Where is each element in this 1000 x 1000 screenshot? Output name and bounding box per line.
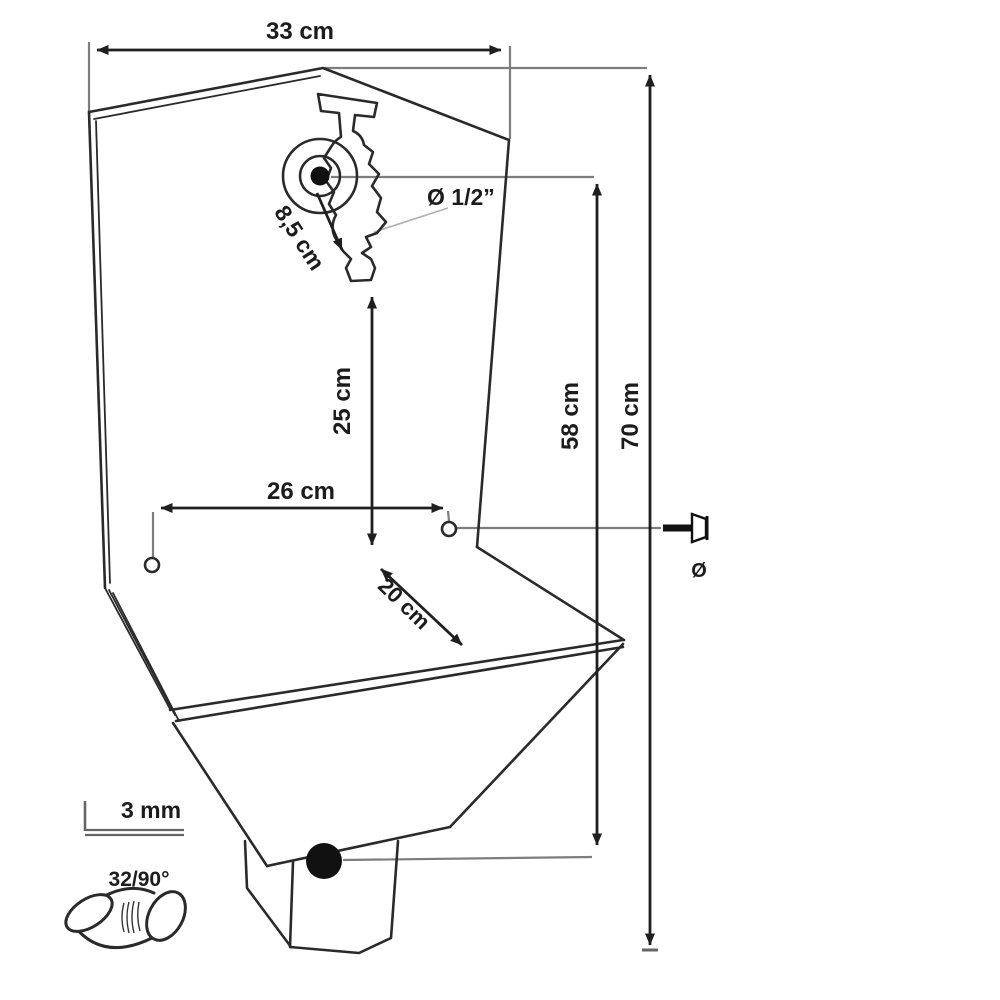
- label-hole-spacing-26cm: 26 cm: [267, 478, 335, 505]
- basin-rim-top-edge: [170, 640, 623, 710]
- label-thread-half-inch: Ø 1/2”: [427, 184, 495, 210]
- elbow-icon: [60, 885, 194, 948]
- corner-ridge-1: [105, 588, 170, 709]
- label-tap-offset-8-5cm: 8,5 cm: [269, 201, 330, 275]
- elbow-hatch-2: [127, 902, 129, 933]
- corner-ridge-2: [109, 590, 175, 715]
- screw-icon: [663, 514, 707, 542]
- label-sheet-thickness-3mm: 3 mm: [121, 797, 181, 823]
- label-basin-depth-20cm: 20 cm: [373, 573, 435, 634]
- basin-top-right-edge: [477, 547, 624, 640]
- label-elbow-32-90: 32/90°: [109, 868, 170, 891]
- elbow-hatch-3: [132, 901, 134, 933]
- dimension-lines: [97, 50, 658, 950]
- label-width-33cm: 33 cm: [266, 18, 334, 45]
- ref-line-drain-58: [343, 857, 592, 860]
- back-panel-top-inner-edge: [94, 76, 320, 119]
- pedestal-left-side: [245, 841, 291, 947]
- ext-line-right-26: [448, 511, 449, 521]
- label-spout-height-25cm: 25 cm: [329, 367, 356, 435]
- basin-rim-bottom-edge: [176, 647, 623, 721]
- label-total-height-70cm: 70 cm: [617, 382, 644, 450]
- tap-body: [318, 94, 386, 281]
- technical-drawing-page: 33 cm 8,5 cm Ø 1/2” 25 cm 26 cm 20 cm 58…: [0, 0, 1000, 1000]
- mounting-hole-right: [442, 522, 456, 536]
- elbow-hatch-4: [138, 902, 140, 931]
- label-screw-diameter: Ø: [691, 560, 707, 582]
- basin-underside-left: [173, 723, 267, 866]
- elbow-hatch-1: [122, 903, 124, 932]
- back-panel-outline: [89, 68, 509, 547]
- corner-ridge-3: [113, 593, 179, 721]
- mounting-hole-left: [145, 558, 159, 572]
- screw-head: [692, 514, 706, 542]
- drain-dot: [306, 843, 342, 879]
- technical-drawing-svg: 33 cm 8,5 cm Ø 1/2” 25 cm 26 cm 20 cm 58…: [0, 0, 1000, 1000]
- tap-center-dot: [311, 167, 330, 186]
- label-hole-height-58cm: 58 cm: [557, 382, 584, 450]
